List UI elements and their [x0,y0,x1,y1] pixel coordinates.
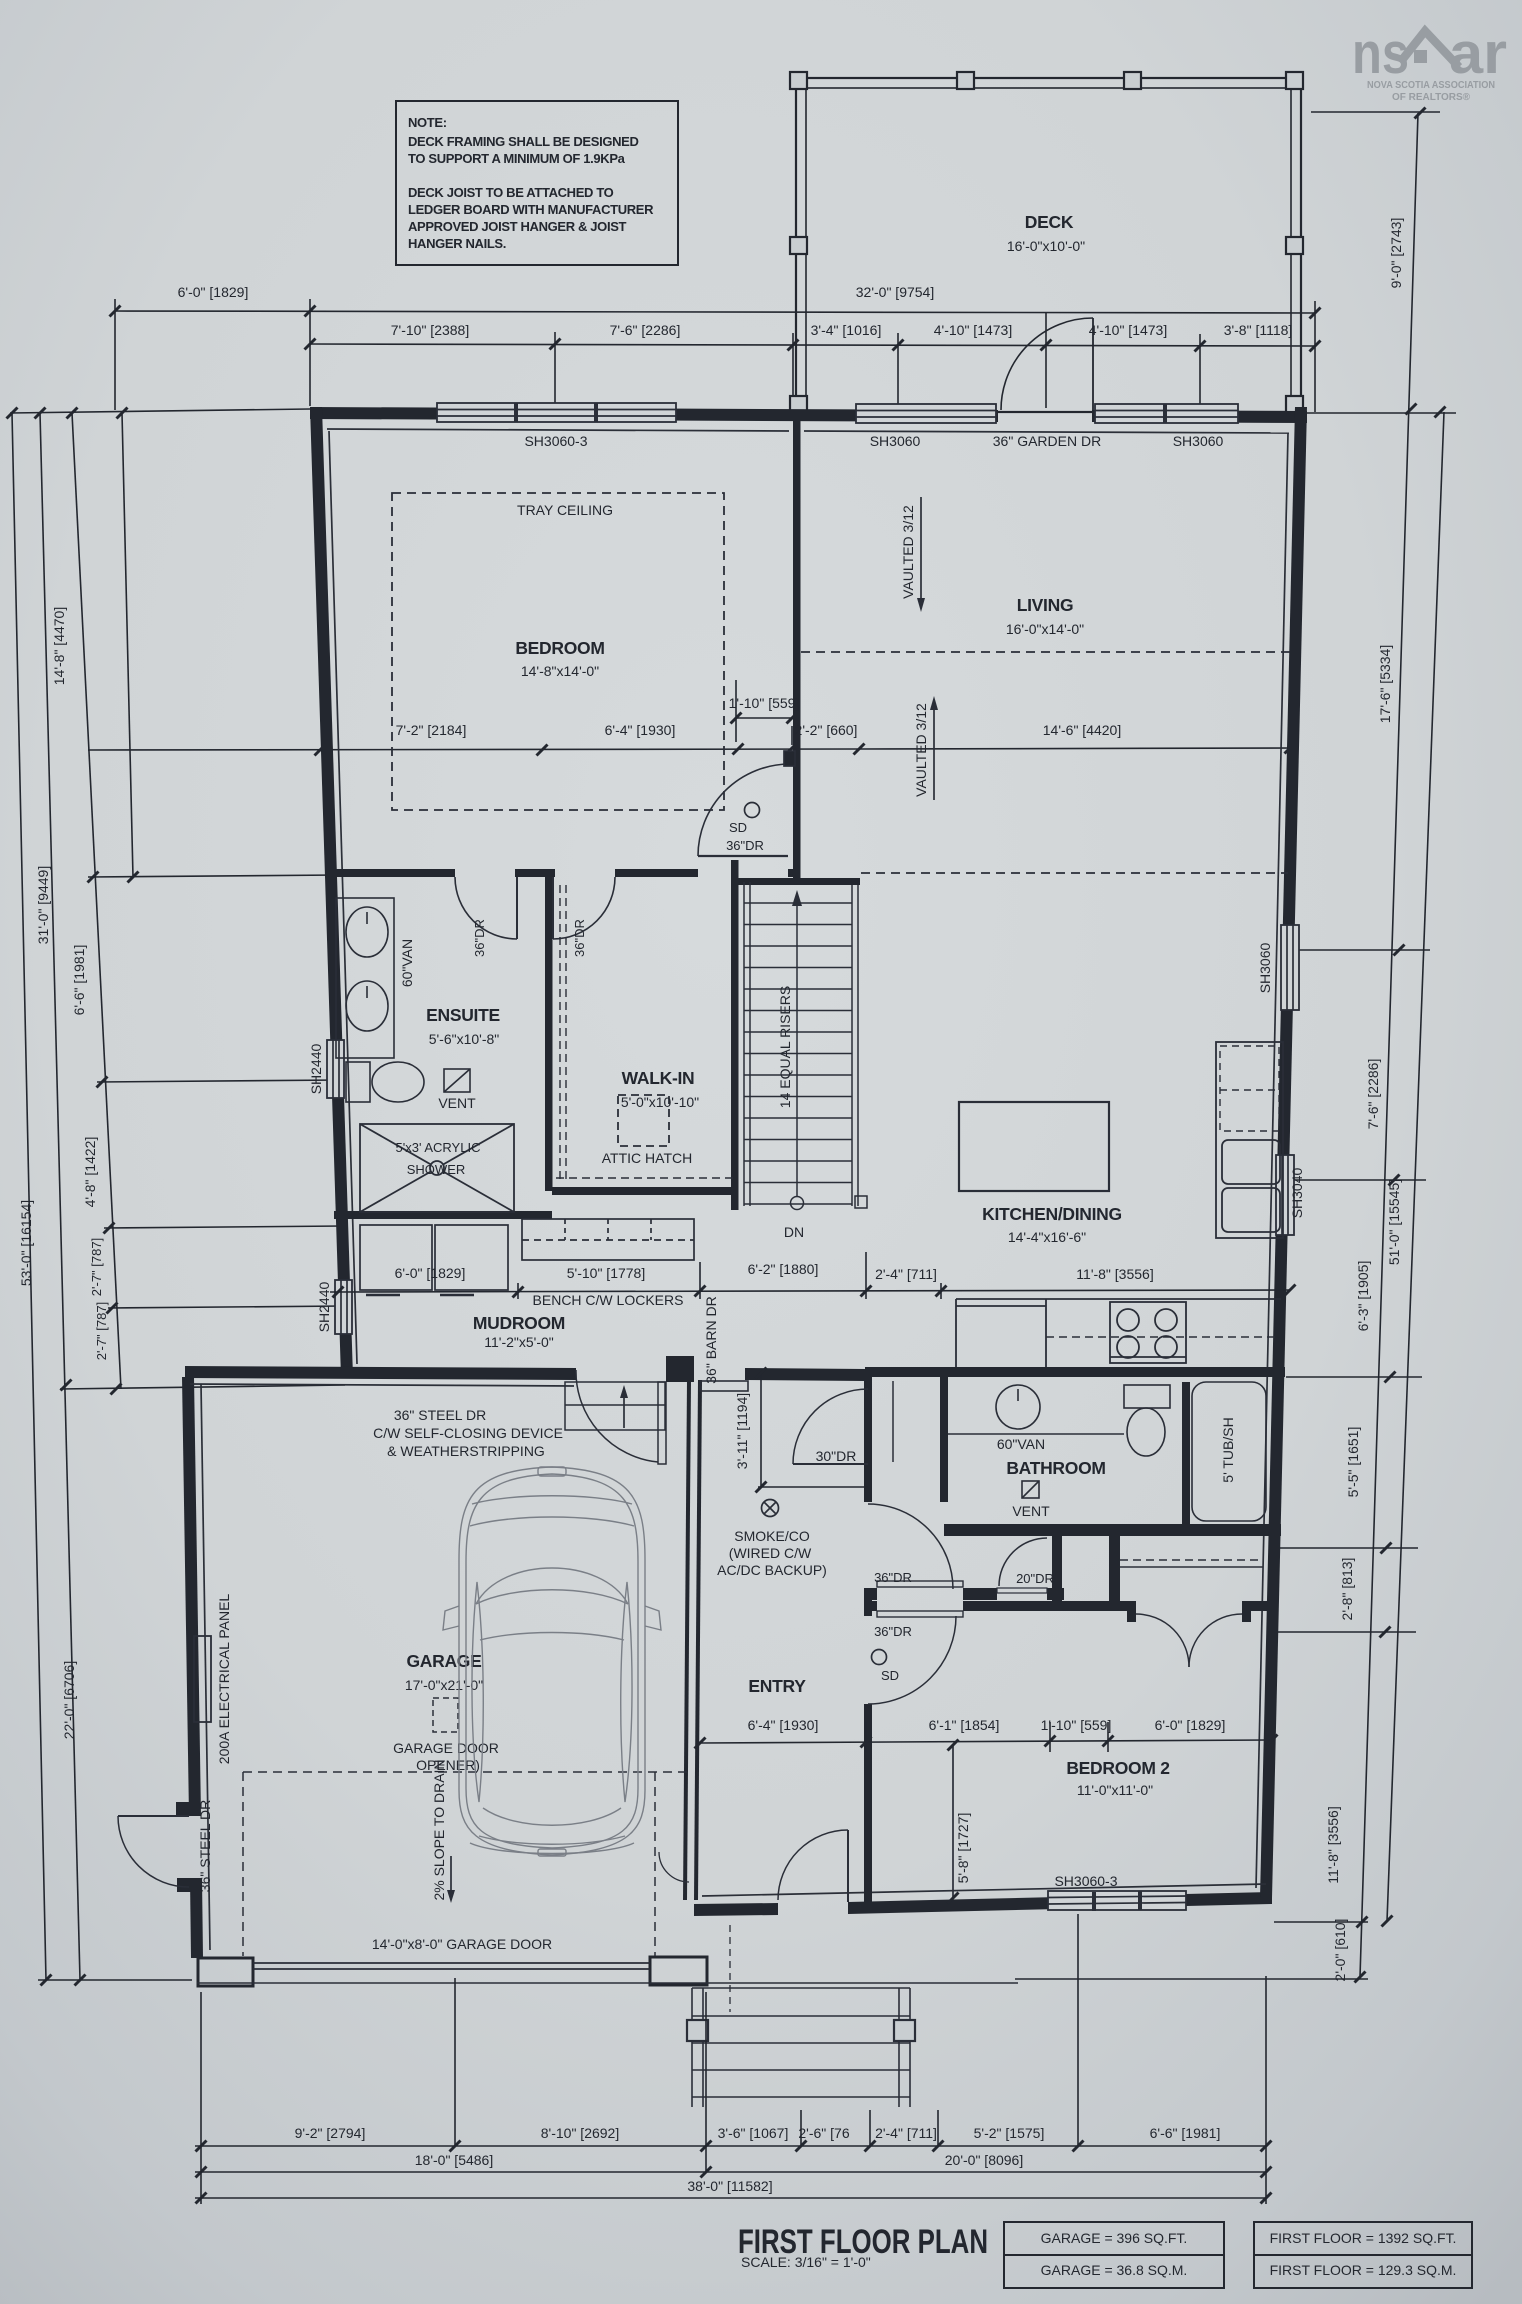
svg-text:SH3060: SH3060 [870,433,921,449]
svg-text:BATHROOM: BATHROOM [1006,1458,1105,1478]
svg-text:14 EQUAL RISERS: 14 EQUAL RISERS [777,986,793,1108]
svg-text:36"DR: 36"DR [874,1624,912,1639]
svg-text:2'-7" [787]: 2'-7" [787] [94,1302,109,1360]
svg-text:DN: DN [784,1224,804,1240]
svg-text:5'-6"x10'-8": 5'-6"x10'-8" [429,1031,500,1047]
svg-text:2'-8" [813]: 2'-8" [813] [1339,1558,1355,1621]
svg-text:4'-8" [1422]: 4'-8" [1422] [82,1137,98,1208]
svg-text:WALK-IN: WALK-IN [622,1068,695,1088]
svg-text:14'-0"x8'-0" GARAGE DOOR: 14'-0"x8'-0" GARAGE DOOR [372,1936,552,1952]
svg-text:7'-6" [2286]: 7'-6" [2286] [610,322,681,338]
svg-text:SH2440: SH2440 [308,1043,324,1094]
svg-text:3'-8" [1118]: 3'-8" [1118] [1224,322,1293,338]
svg-text:5' TUB/SH: 5' TUB/SH [1220,1417,1236,1482]
svg-text:VENT: VENT [438,1095,476,1111]
svg-text:6'-6" [1981]: 6'-6" [1981] [71,945,87,1016]
svg-text:GARAGE = 396 SQ.FT.: GARAGE = 396 SQ.FT. [1041,2230,1188,2246]
svg-text:VENT: VENT [1012,1503,1050,1519]
svg-text:2'-7" [787]: 2'-7" [787] [89,1238,104,1296]
svg-text:BEDROOM 2: BEDROOM 2 [1066,1758,1170,1778]
svg-text:2'-4" [711]: 2'-4" [711] [875,1266,937,1282]
svg-text:SD: SD [881,1668,899,1683]
svg-text:TRAY CEILING: TRAY CEILING [517,502,613,518]
svg-text:BENCH C/W LOCKERS: BENCH C/W LOCKERS [533,1292,684,1308]
svg-text:5'-0"x10'-10": 5'-0"x10'-10" [621,1094,699,1110]
svg-text:2'-4" [711]: 2'-4" [711] [875,2125,937,2141]
svg-text:20"DR: 20"DR [1016,1571,1054,1586]
svg-text:53'-0" [16154]: 53'-0" [16154] [18,1200,34,1286]
svg-text:6'-0" [1829]: 6'-0" [1829] [1155,1717,1226,1733]
svg-text:6'-2" [1880]: 6'-2" [1880] [748,1261,819,1277]
svg-text:OF REALTORS®: OF REALTORS® [1392,92,1471,103]
svg-text:16'-0"x14'-0": 16'-0"x14'-0" [1006,621,1084,637]
svg-text:36" STEEL DR: 36" STEEL DR [394,1407,486,1423]
svg-text:1'-10" [559]: 1'-10" [559] [729,695,800,711]
svg-text:5'-5" [1651]: 5'-5" [1651] [1345,1427,1361,1498]
svg-text:SH3060-3: SH3060-3 [1054,1873,1117,1889]
svg-text:36"DR: 36"DR [572,919,587,957]
svg-text:3'-11" [1194]: 3'-11" [1194] [734,1393,750,1469]
svg-text:51'-0" [15545]: 51'-0" [15545] [1386,1179,1402,1265]
svg-text:2'-6" [76: 2'-6" [76 [798,2125,849,2141]
svg-text:VAULTED 3/12: VAULTED 3/12 [913,703,929,797]
svg-text:5'-10" [1778]: 5'-10" [1778] [567,1265,645,1281]
svg-text:16'-0"x10'-0": 16'-0"x10'-0" [1007,238,1085,254]
svg-text:36"DR: 36"DR [472,919,487,957]
svg-text:5'-2" [1575]: 5'-2" [1575] [974,2125,1045,2141]
svg-text:36"DR: 36"DR [726,838,764,853]
svg-text:4'-10" [1473]: 4'-10" [1473] [934,322,1012,338]
svg-text:6'-6" [1981]: 6'-6" [1981] [1150,2125,1221,2141]
svg-text:6'-4" [1930]: 6'-4" [1930] [748,1717,819,1733]
svg-text:14'-4"x16'-6": 14'-4"x16'-6" [1008,1229,1086,1245]
svg-text:7'-2" [2184]: 7'-2" [2184] [396,722,467,738]
svg-text:9'-0" [2743]: 9'-0" [2743] [1388,218,1404,289]
svg-text:SCALE: 3/16" = 1'-0": SCALE: 3/16" = 1'-0" [741,2254,871,2270]
svg-text:ENSUITE: ENSUITE [426,1005,500,1025]
svg-text:ar: ar [1449,21,1507,86]
svg-text:6'-4" [1930]: 6'-4" [1930] [605,722,676,738]
svg-text:11'-8" [3556]: 11'-8" [3556] [1076,1266,1153,1282]
svg-text:6'-0" [1829]: 6'-0" [1829] [395,1265,466,1281]
svg-text:SH3040: SH3040 [1289,1167,1305,1218]
svg-text:36" STEEL DR: 36" STEEL DR [197,1800,213,1892]
svg-text:11'-8" [3556]: 11'-8" [3556] [1325,1806,1341,1883]
svg-text:32'-0" [9754]: 32'-0" [9754] [856,284,934,300]
svg-text:20'-0" [8096]: 20'-0" [8096] [945,2152,1023,2168]
svg-text:NOTE:: NOTE: [408,115,447,130]
svg-text:14'-8"x14'-0": 14'-8"x14'-0" [521,663,599,679]
svg-text:LEDGER BOARD WITH MANUFACTURER: LEDGER BOARD WITH MANUFACTURER [408,202,654,217]
svg-text:APPROVED JOIST HANGER & JOIST: APPROVED JOIST HANGER & JOIST [408,219,627,234]
svg-text:7'-6" [2286]: 7'-6" [2286] [1365,1059,1381,1130]
svg-text:& WEATHERSTRIPPING: & WEATHERSTRIPPING [387,1443,545,1459]
svg-text:3'-4" [1016]: 3'-4" [1016] [811,322,882,338]
svg-text:6'-0" [1829]: 6'-0" [1829] [178,284,249,300]
svg-text:GARAGE: GARAGE [406,1651,481,1671]
svg-text:SD: SD [729,820,747,835]
svg-text:FIRST FLOOR = 129.3 SQ.M.: FIRST FLOOR = 129.3 SQ.M. [1270,2262,1457,2278]
svg-text:18'-0" [5486]: 18'-0" [5486] [415,2152,493,2168]
svg-text:22'-0" [6706]: 22'-0" [6706] [61,1661,77,1739]
svg-text:36"DR: 36"DR [874,1570,912,1585]
svg-text:1'-10" [559]: 1'-10" [559] [1041,1717,1112,1733]
svg-text:VAULTED 3/12: VAULTED 3/12 [900,505,916,599]
svg-text:LIVING: LIVING [1017,595,1074,615]
svg-text:11'-0"x11'-0": 11'-0"x11'-0" [1077,1782,1153,1798]
svg-text:31'-0" [9449]: 31'-0" [9449] [35,866,51,944]
svg-text:4'-10" [1473]: 4'-10" [1473] [1089,322,1167,338]
svg-text:C/W SELF-CLOSING DEVICE: C/W SELF-CLOSING DEVICE [373,1425,563,1441]
svg-text:KITCHEN/DINING: KITCHEN/DINING [982,1204,1122,1224]
svg-text:7'-10" [2388]: 7'-10" [2388] [391,322,469,338]
svg-text:5'x3' ACRYLIC: 5'x3' ACRYLIC [396,1140,481,1155]
svg-text:5'-8" [1727]: 5'-8" [1727] [955,1813,971,1884]
svg-text:38'-0" [11582]: 38'-0" [11582] [687,2178,772,2194]
svg-text:FIRST FLOOR = 1392 SQ.FT.: FIRST FLOOR = 1392 SQ.FT. [1270,2230,1457,2246]
svg-text:SH3060-3: SH3060-3 [524,433,587,449]
svg-text:60"VAN: 60"VAN [399,939,415,987]
svg-text:BEDROOM: BEDROOM [515,638,604,658]
svg-text:OPENER): OPENER) [416,1757,480,1773]
svg-text:17'-6" [5334]: 17'-6" [5334] [1377,645,1393,723]
svg-text:DECK JOIST TO BE ATTACHED TO: DECK JOIST TO BE ATTACHED TO [408,185,614,200]
svg-text:2% SLOPE TO DRAIN: 2% SLOPE TO DRAIN [431,1759,447,1900]
svg-text:SH3060: SH3060 [1257,942,1273,993]
svg-text:200A ELECTRICAL PANEL: 200A ELECTRICAL PANEL [216,1594,232,1765]
svg-text:(WIRED C/W: (WIRED C/W [729,1545,812,1561]
svg-text:DECK: DECK [1025,212,1074,232]
svg-text:ATTIC HATCH: ATTIC HATCH [602,1150,692,1166]
svg-text:GARAGE = 36.8 SQ.M.: GARAGE = 36.8 SQ.M. [1041,2262,1188,2278]
svg-text:3'-6" [1067]: 3'-6" [1067] [718,2125,789,2141]
svg-text:9'-2" [2794]: 9'-2" [2794] [295,2125,366,2141]
svg-text:NOVA SCOTIA ASSOCIATION: NOVA SCOTIA ASSOCIATION [1367,80,1495,91]
svg-text:HANGER NAILS.: HANGER NAILS. [408,236,506,251]
svg-text:SH2440: SH2440 [316,1281,332,1332]
svg-text:6'-3" [1905]: 6'-3" [1905] [1355,1261,1371,1332]
svg-text:30"DR: 30"DR [816,1448,857,1464]
svg-text:14'-6" [4420]: 14'-6" [4420] [1043,722,1121,738]
svg-text:SH3060: SH3060 [1173,433,1224,449]
svg-text:60"VAN: 60"VAN [997,1436,1045,1452]
svg-text:AC/DC BACKUP): AC/DC BACKUP) [717,1562,827,1578]
svg-text:DECK FRAMING SHALL BE DESIGNED: DECK FRAMING SHALL BE DESIGNED [408,134,639,149]
svg-text:ENTRY: ENTRY [748,1676,806,1696]
svg-text:8'-10" [2692]: 8'-10" [2692] [541,2125,619,2141]
svg-text:ns: ns [1352,21,1409,86]
svg-text:36" GARDEN DR: 36" GARDEN DR [993,433,1101,449]
svg-text:2'-0" [610]: 2'-0" [610] [1332,1919,1348,1982]
svg-text:2'-2" [660]: 2'-2" [660] [795,722,858,738]
svg-text:SHOWER: SHOWER [407,1162,466,1177]
svg-text:MUDROOM: MUDROOM [473,1313,565,1333]
svg-text:14'-8" [4470]: 14'-8" [4470] [51,607,67,685]
svg-text:6'-1" [1854]: 6'-1" [1854] [929,1717,1000,1733]
svg-text:SMOKE/CO: SMOKE/CO [734,1528,810,1544]
svg-text:TO SUPPORT A MINIMUM OF 1.9KPa: TO SUPPORT A MINIMUM OF 1.9KPa [408,151,626,166]
svg-text:36" BARN DR: 36" BARN DR [703,1296,719,1383]
svg-text:11'-2"x5'-0": 11'-2"x5'-0" [484,1334,554,1350]
